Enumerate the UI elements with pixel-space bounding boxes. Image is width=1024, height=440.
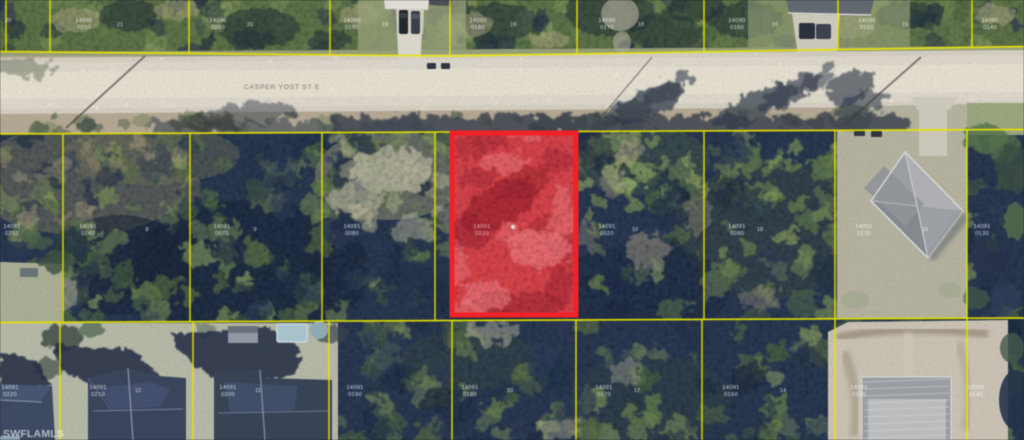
svg-text:14091: 14091 xyxy=(595,385,612,391)
svg-text:14090: 14090 xyxy=(75,18,92,24)
svg-text:0180: 0180 xyxy=(471,25,485,31)
svg-text:16: 16 xyxy=(922,227,928,233)
svg-text:14090: 14090 xyxy=(981,18,998,24)
svg-text:15: 15 xyxy=(902,22,908,28)
svg-text:14090: 14090 xyxy=(728,18,745,24)
svg-text:0160: 0160 xyxy=(730,25,744,31)
svg-text:14091: 14091 xyxy=(3,224,20,230)
svg-text:11: 11 xyxy=(255,388,261,394)
svg-text:14091: 14091 xyxy=(473,224,490,230)
svg-text:0200: 0200 xyxy=(211,25,225,31)
svg-text:0180: 0180 xyxy=(463,392,477,398)
svg-text:10: 10 xyxy=(632,227,638,233)
svg-text:9: 9 xyxy=(253,227,256,233)
svg-text:0120: 0120 xyxy=(857,231,871,237)
svg-text:0160: 0160 xyxy=(724,392,738,398)
svg-text:12: 12 xyxy=(135,388,141,394)
svg-text:19: 19 xyxy=(382,22,388,28)
svg-text:14091: 14091 xyxy=(967,385,984,391)
svg-text:8: 8 xyxy=(145,227,148,233)
svg-text:0170: 0170 xyxy=(600,25,614,31)
svg-text:0210: 0210 xyxy=(77,25,91,31)
svg-text:14091: 14091 xyxy=(461,385,478,391)
svg-text:14090: 14090 xyxy=(598,18,615,24)
svg-text:14091: 14091 xyxy=(728,224,745,230)
svg-text:0250: 0250 xyxy=(5,231,19,237)
svg-text:14091: 14091 xyxy=(850,385,867,391)
svg-text:0190: 0190 xyxy=(345,25,359,31)
svg-text:0140: 0140 xyxy=(969,392,983,398)
svg-text:18: 18 xyxy=(638,22,644,28)
svg-text:14090: 14090 xyxy=(209,18,226,24)
svg-text:14091: 14091 xyxy=(346,385,363,391)
svg-text:21: 21 xyxy=(117,22,123,28)
svg-text:14091: 14091 xyxy=(219,385,236,391)
svg-text:14091: 14091 xyxy=(598,224,615,230)
svg-text:19: 19 xyxy=(510,22,516,28)
svg-text:14090: 14090 xyxy=(858,18,875,24)
svg-text:0150: 0150 xyxy=(860,25,874,31)
svg-text:14091: 14091 xyxy=(973,224,990,230)
svg-text:0240: 0240 xyxy=(81,231,95,237)
svg-text:0170: 0170 xyxy=(597,392,611,398)
svg-text:14091: 14091 xyxy=(1,385,18,391)
svg-text:0130: 0130 xyxy=(975,231,989,237)
svg-text:10: 10 xyxy=(507,388,513,394)
svg-text:17: 17 xyxy=(634,388,640,394)
svg-text:16: 16 xyxy=(772,22,778,28)
svg-text:20: 20 xyxy=(5,18,12,24)
svg-text:0220: 0220 xyxy=(475,231,489,237)
svg-text:18: 18 xyxy=(757,227,763,233)
svg-text:20: 20 xyxy=(247,22,253,28)
svg-text:14091: 14091 xyxy=(343,224,360,230)
svg-text:14090: 14090 xyxy=(469,18,486,24)
svg-text:0220: 0220 xyxy=(3,392,17,398)
svg-text:0090: 0090 xyxy=(730,231,744,237)
svg-text:14091: 14091 xyxy=(855,224,872,230)
svg-text:0080: 0080 xyxy=(345,231,359,237)
svg-text:0070: 0070 xyxy=(215,231,229,237)
svg-text:0200: 0200 xyxy=(221,392,235,398)
svg-text:14090: 14090 xyxy=(343,18,360,24)
svg-text:0150: 0150 xyxy=(852,392,866,398)
svg-text:14: 14 xyxy=(780,388,786,394)
svg-text:14091: 14091 xyxy=(213,224,230,230)
svg-text:14091: 14091 xyxy=(79,224,96,230)
svg-text:0140: 0140 xyxy=(983,25,997,31)
svg-text:0190: 0190 xyxy=(348,392,362,398)
svg-text:CASPER YOST ST E: CASPER YOST ST E xyxy=(244,84,320,91)
svg-text:0210: 0210 xyxy=(91,392,105,398)
svg-text:0020: 0020 xyxy=(600,231,614,237)
svg-text:14091: 14091 xyxy=(722,385,739,391)
svg-text:14091: 14091 xyxy=(89,385,106,391)
